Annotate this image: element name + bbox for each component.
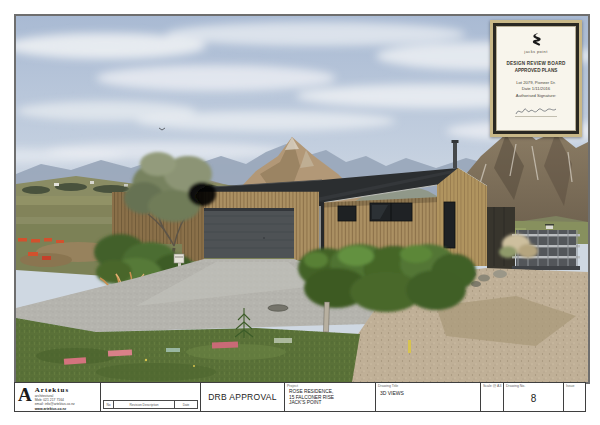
artektus-logo-icon: A [18,386,32,403]
drb-stamp: jacks point DESIGN REVIEW BOARD APPROVED… [490,20,582,137]
project-cell: Project ROSE RESIDENCE, 15 FALCONER RISE… [285,383,376,411]
jacks-point-logo-icon [529,33,544,48]
drawing-number-label: Drawing No. [506,384,525,388]
signature [513,104,559,118]
garage-door [204,208,294,258]
stamp-brand: jacks point [524,49,547,54]
drawing-title: 3D VIEWS [380,390,480,396]
stamp-auth: Authorised Signature: [516,93,556,98]
scale-cell: Scale @ A3 [481,383,504,411]
project-label: Project [287,384,298,388]
title-block: A Artektus architectural Mob: 021 217 71… [14,382,586,412]
revision-strip: No Revision Description Date [103,400,198,409]
revision-cell: No Revision Description Date [101,383,201,411]
stamp-board-line2: APPROVED PLANS [515,68,558,73]
stamp-lot: Lot 2079, Pioneer Dr. [516,80,556,85]
firm-website: www.artektus.co.nz [35,407,75,411]
drb-stamp-frame: jacks point DESIGN REVIEW BOARD APPROVED… [493,23,579,134]
firm-cell: A Artektus architectural Mob: 021 217 71… [15,383,101,411]
stamp-board-line1: DESIGN REVIEW BOARD [507,61,566,66]
approval-status: DRB APPROVAL [208,392,277,402]
approval-cell: DRB APPROVAL [201,383,285,411]
render-photo: jacks point DESIGN REVIEW BOARD APPROVED… [14,14,590,384]
project-line3: JACK'S POINT [289,400,375,406]
chimney-flue [453,142,457,168]
window [338,203,412,221]
drawing-sheet: jacks point DESIGN REVIEW BOARD APPROVED… [0,0,600,425]
revision-desc-label: Revision Description [114,401,175,408]
gable-window [444,202,455,248]
revision-date-label: Date [175,401,197,408]
manhole [268,305,288,311]
wooden-stake [323,302,329,332]
drawing-number: 8 [531,393,537,404]
drawing-title-label: Drawing Title [378,384,398,388]
drawing-title-cell: Drawing Title 3D VIEWS [376,383,481,411]
issue-cell: Issue [564,383,585,411]
yellow-marker [408,340,411,353]
scale-label: Scale @ A3 [483,384,501,388]
issue-label: Issue [566,384,574,388]
drawing-number-cell: Drawing No. 8 [504,383,564,411]
revision-no-label: No [104,401,114,408]
stamp-date: Date 1/11/2016 [522,86,550,91]
firm-name: Artektus [35,386,75,394]
